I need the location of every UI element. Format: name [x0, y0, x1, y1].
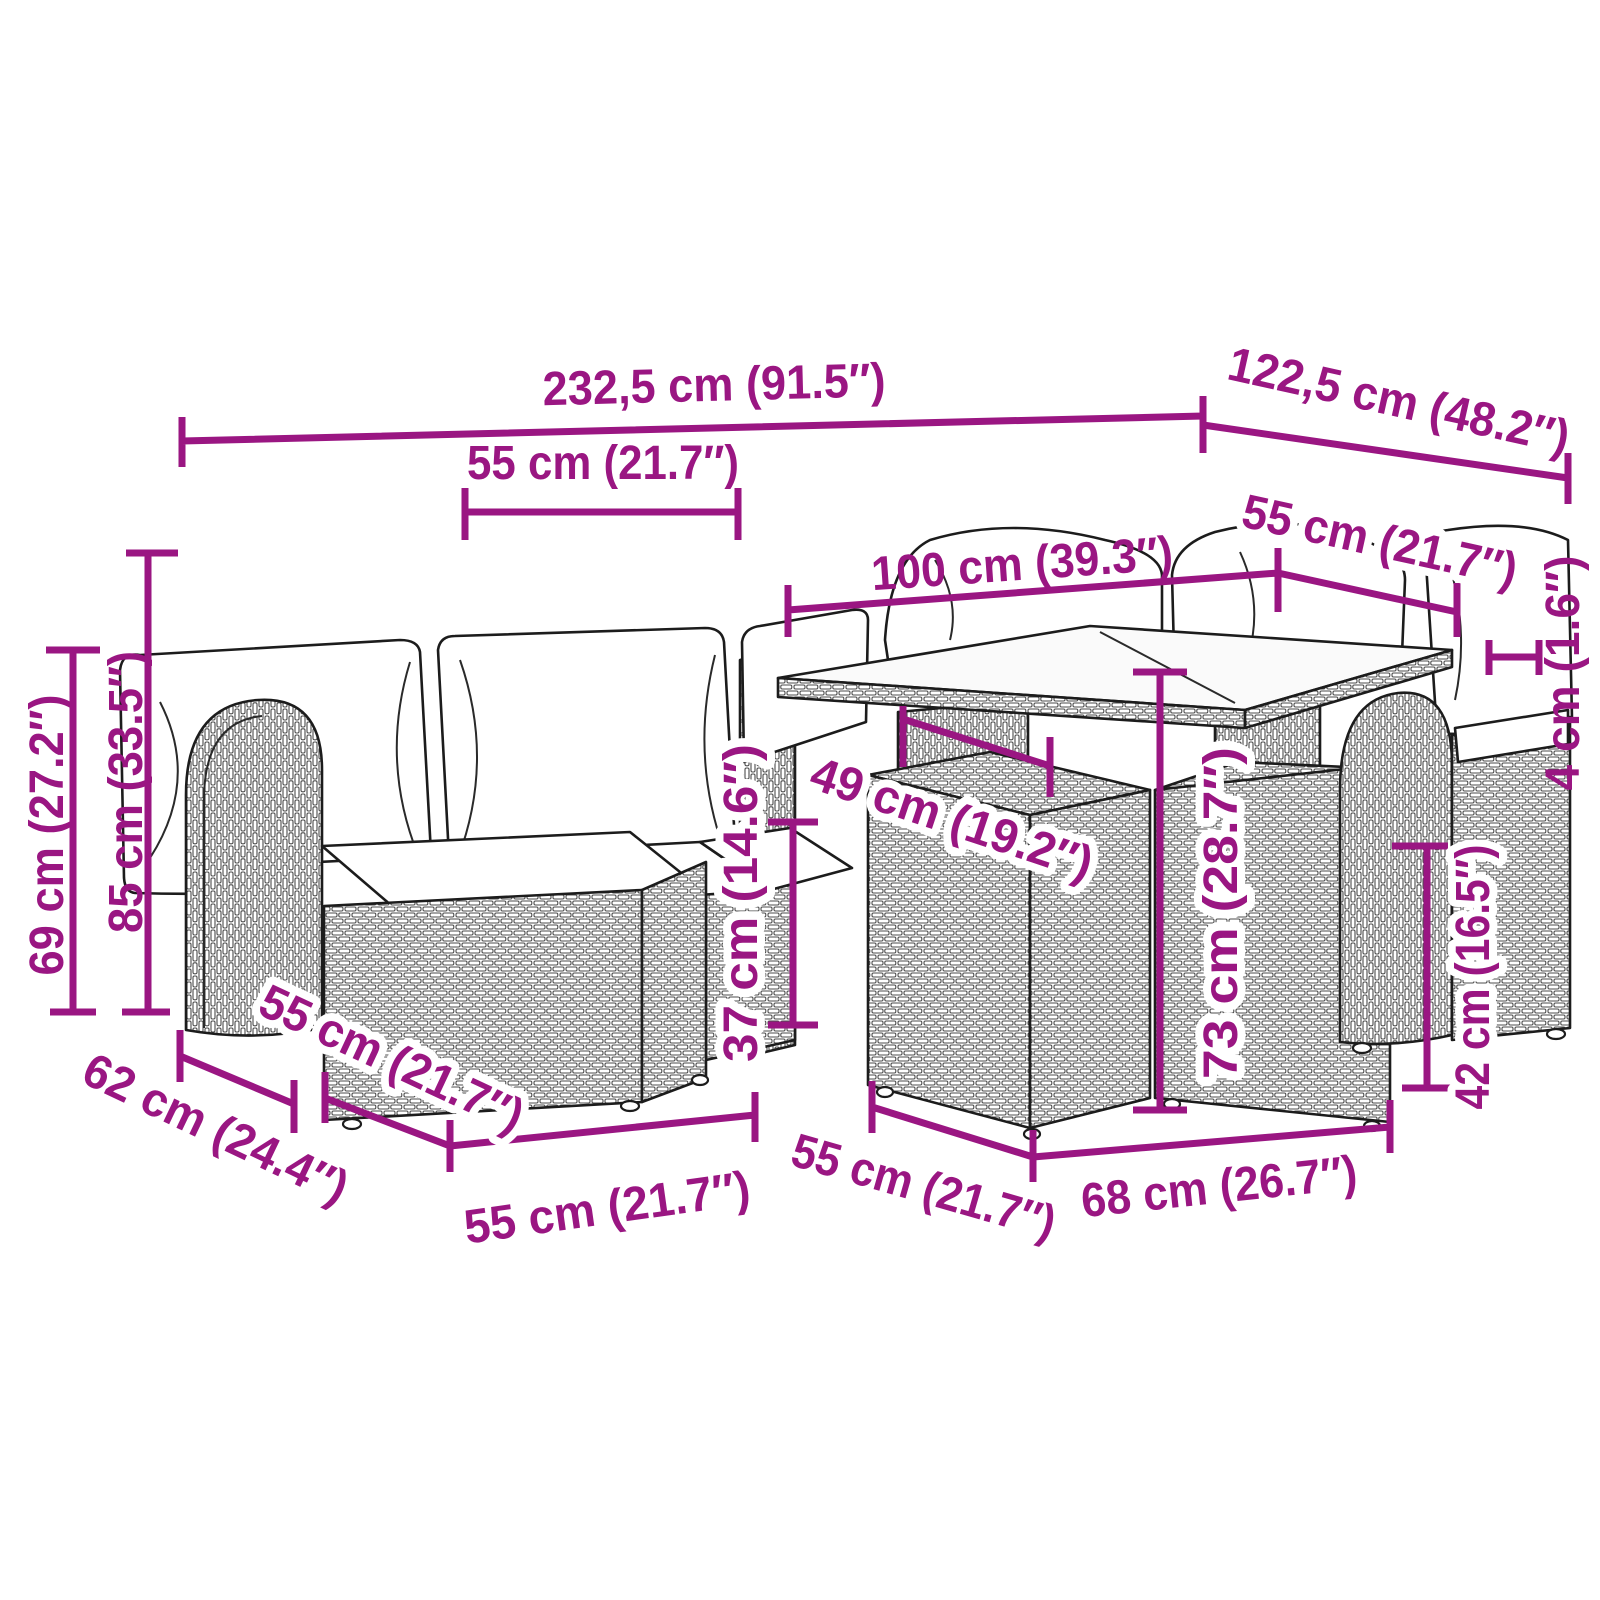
foot: [877, 1087, 893, 1097]
label-table-height: 73 cm (28.7″): [1195, 747, 1248, 1079]
foot: [692, 1075, 708, 1085]
label-overall-width: 232,5 cm (91.5″): [542, 354, 886, 416]
dimension-diagram: 232,5 cm (91.5″) 122,5 cm (48.2″) 55 cm …: [0, 0, 1600, 1600]
label-stool-depth: 55 cm (21.7″): [786, 1124, 1062, 1250]
ottoman-side: [642, 862, 706, 1102]
label-tabletop-thickness: 4 cm (1.6″): [1537, 556, 1590, 791]
diagram-canvas: 232,5 cm (91.5″) 122,5 cm (48.2″) 55 cm …: [0, 0, 1600, 1600]
foot: [1547, 1029, 1565, 1039]
label-seat-height: 37 cm (14.6″): [715, 744, 768, 1062]
foot: [1353, 1043, 1371, 1053]
dim-back-cushion-width-line: [465, 488, 738, 540]
right-armrest: [1340, 693, 1452, 1044]
label-armrest-height: 69 cm (27.2″): [21, 695, 74, 976]
label-ottoman-width: 55 cm (21.7″): [461, 1162, 754, 1255]
label-back-cushion-width: 55 cm (21.7″): [467, 437, 739, 490]
label-stool-width: 68 cm (26.7″): [1079, 1146, 1360, 1228]
label-overall-height: 85 cm (33.5″): [100, 651, 153, 933]
label-overall-depth: 122,5 cm (48.2″): [1223, 338, 1574, 465]
foot: [343, 1119, 361, 1129]
foot: [621, 1101, 639, 1111]
left-armrest: [186, 700, 322, 1036]
label-stool-height: 42 cm (16.5″): [1447, 845, 1500, 1110]
